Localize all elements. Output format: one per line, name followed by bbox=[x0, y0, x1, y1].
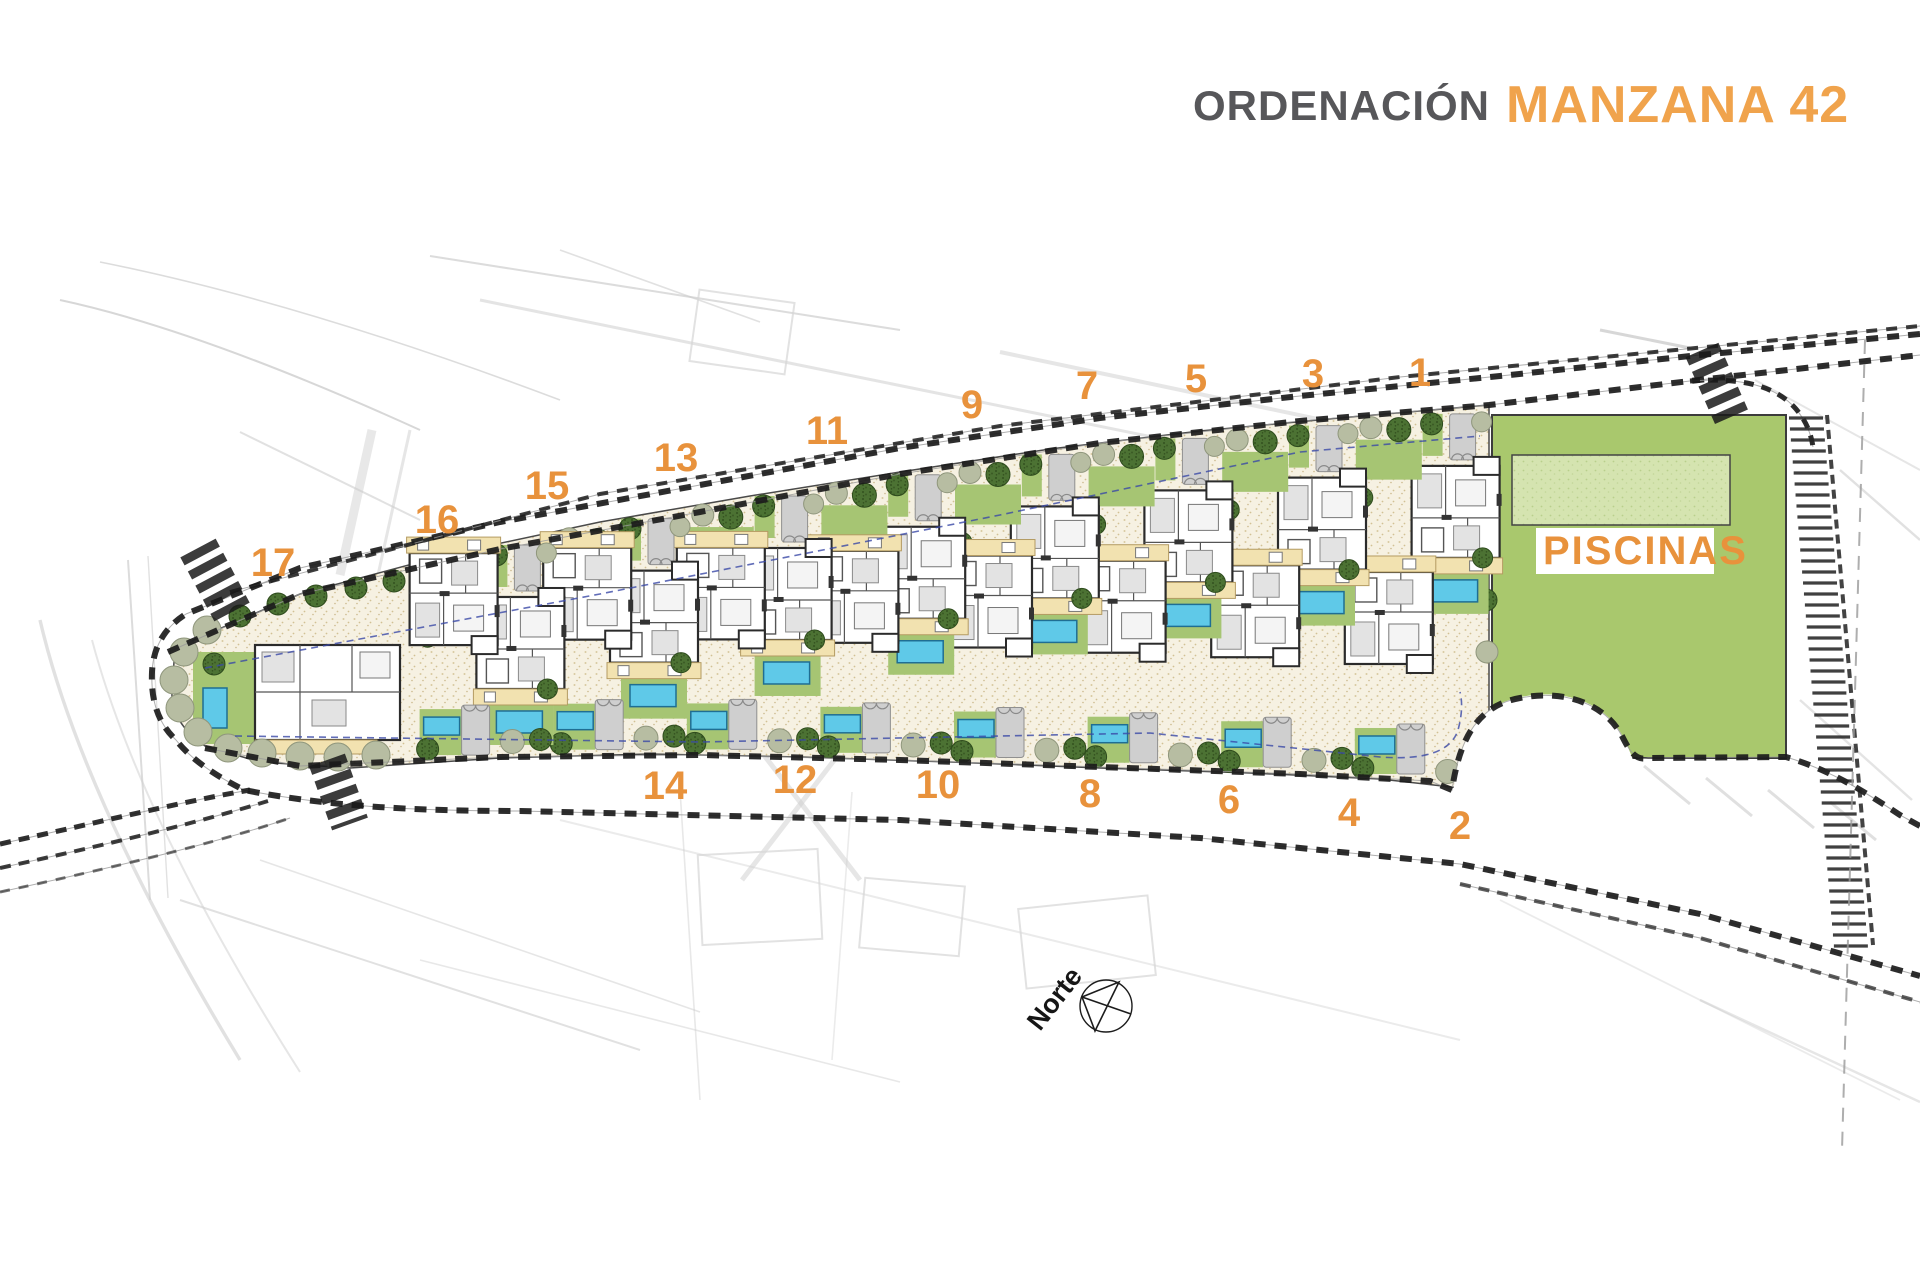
driveway bbox=[862, 703, 890, 753]
piscinas-label-group: PISCINAS bbox=[1536, 528, 1748, 574]
tree-icon bbox=[986, 463, 1010, 487]
pool bbox=[424, 717, 460, 735]
page-title: ORDENACIÓN MANZANA 42 bbox=[1193, 76, 1849, 134]
terrace-furniture bbox=[601, 535, 614, 545]
driveway bbox=[1130, 713, 1158, 763]
tree-icon bbox=[536, 543, 556, 563]
tree-icon bbox=[1338, 424, 1358, 444]
villa-door bbox=[1442, 515, 1452, 520]
villa-door bbox=[829, 576, 834, 588]
sketch-line bbox=[128, 560, 150, 900]
villa-room bbox=[988, 608, 1018, 634]
tree-icon bbox=[1153, 437, 1175, 459]
boundary-dashed bbox=[1842, 340, 1865, 1150]
pool bbox=[1432, 580, 1478, 602]
north-label: Norte bbox=[1021, 962, 1088, 1036]
villa-wing bbox=[1407, 655, 1433, 673]
pool bbox=[1031, 620, 1077, 642]
villa-room bbox=[1351, 622, 1375, 656]
pool bbox=[1164, 604, 1210, 626]
villa-room bbox=[719, 555, 745, 579]
villa-door bbox=[907, 576, 917, 581]
villa-wing bbox=[806, 539, 832, 557]
villa-door bbox=[1174, 539, 1184, 544]
plot-number: 9 bbox=[961, 383, 983, 427]
tree-icon bbox=[930, 732, 952, 754]
pool bbox=[824, 715, 860, 733]
tree-icon bbox=[500, 729, 524, 753]
villa-room bbox=[1322, 492, 1352, 518]
site-plan-page: 1357911131516171412108642 PISCINAS Norte… bbox=[0, 0, 1920, 1280]
villa-door bbox=[695, 599, 700, 611]
villa-door bbox=[1241, 603, 1251, 608]
villa-door bbox=[1041, 555, 1051, 560]
terrace-furniture bbox=[618, 666, 629, 676]
pool bbox=[691, 711, 727, 729]
villa-door bbox=[1163, 613, 1168, 625]
tree-icon bbox=[1035, 738, 1059, 762]
tree-icon bbox=[1071, 452, 1091, 472]
sketch-line bbox=[832, 792, 852, 1060]
sketch-line bbox=[680, 790, 700, 1100]
tree-icon bbox=[663, 725, 685, 747]
sketch-line bbox=[1700, 1000, 1920, 1102]
villa-door bbox=[1497, 494, 1502, 506]
villa-room bbox=[1320, 538, 1346, 562]
sketch-line bbox=[180, 900, 640, 1050]
road-texture bbox=[1830, 802, 1876, 840]
villa-room bbox=[721, 599, 751, 625]
villa-door bbox=[1296, 617, 1301, 629]
plot-number: 7 bbox=[1076, 364, 1098, 408]
villa-door bbox=[974, 594, 984, 599]
villa-door bbox=[561, 625, 566, 637]
tree-icon bbox=[1093, 443, 1115, 465]
plot-number: 5 bbox=[1185, 357, 1207, 401]
villa-wing bbox=[1474, 457, 1500, 475]
villa-door bbox=[1375, 610, 1385, 615]
tree-icon bbox=[1302, 748, 1326, 772]
plot-number: 16 bbox=[415, 498, 460, 542]
villa-room bbox=[1456, 480, 1486, 506]
plot-number: 12 bbox=[773, 758, 818, 802]
tree-icon bbox=[1473, 548, 1493, 568]
terrace-furniture bbox=[1136, 548, 1149, 558]
tree-icon bbox=[937, 473, 957, 493]
villa-room bbox=[1255, 617, 1285, 643]
villa-door bbox=[840, 589, 850, 594]
pool bbox=[1359, 736, 1395, 754]
tree-icon bbox=[203, 653, 225, 675]
villa-door bbox=[707, 585, 717, 590]
sketch-line bbox=[420, 960, 900, 1082]
tree-icon bbox=[797, 728, 819, 750]
tree-icon bbox=[1168, 743, 1192, 767]
plot-number: 4 bbox=[1338, 791, 1361, 835]
crosswalk bbox=[198, 548, 232, 612]
villa-room bbox=[553, 554, 575, 578]
tree-icon bbox=[684, 732, 706, 754]
villa-room bbox=[1454, 526, 1480, 550]
sketch-line bbox=[430, 256, 900, 330]
sketch-line bbox=[260, 860, 700, 1012]
piscinas-label: PISCINAS bbox=[1543, 529, 1748, 573]
terrace-furniture bbox=[1269, 552, 1282, 562]
villa-door bbox=[1108, 599, 1118, 604]
villa-door bbox=[495, 605, 500, 617]
title-ordenacion: ORDENACIÓN bbox=[1193, 81, 1490, 129]
plot-number: 10 bbox=[916, 763, 961, 807]
tree-icon bbox=[852, 483, 876, 507]
plot-number: 6 bbox=[1218, 778, 1240, 822]
villa-room bbox=[518, 657, 544, 681]
tree-icon bbox=[901, 733, 925, 757]
villa-room bbox=[1387, 580, 1413, 604]
tree-icon bbox=[1253, 430, 1277, 454]
tree-icon bbox=[1360, 417, 1382, 439]
villa-door bbox=[962, 555, 967, 567]
sketch-building bbox=[859, 878, 965, 956]
driveway bbox=[462, 705, 490, 755]
plot-number: 1 bbox=[1409, 351, 1431, 395]
terrace-furniture bbox=[484, 692, 495, 702]
villa-room bbox=[854, 603, 884, 629]
villa-door bbox=[1029, 608, 1034, 620]
sketch-line bbox=[1500, 900, 1900, 1100]
crosswalk bbox=[1702, 350, 1732, 418]
site-plan-drawing: 1357911131516171412108642 PISCINAS Norte… bbox=[0, 0, 1920, 1280]
tree-icon bbox=[634, 726, 658, 750]
plot-number: 8 bbox=[1079, 772, 1101, 816]
tree-icon bbox=[166, 694, 194, 722]
villa-room bbox=[1055, 520, 1085, 546]
sketch-building bbox=[1018, 895, 1156, 988]
villa-room bbox=[654, 585, 684, 611]
villa-door bbox=[440, 591, 450, 596]
villa-room bbox=[788, 562, 818, 588]
tree-icon bbox=[805, 630, 825, 650]
villa-door bbox=[1096, 534, 1101, 546]
villa-room bbox=[786, 608, 812, 632]
pool bbox=[557, 712, 593, 730]
villa-room bbox=[1422, 528, 1444, 552]
sketch-line bbox=[1840, 470, 1920, 540]
driveway bbox=[1397, 724, 1425, 774]
tree-icon bbox=[1120, 444, 1144, 468]
driveway bbox=[996, 708, 1024, 758]
villa-door bbox=[1430, 624, 1435, 636]
tree-icon bbox=[1064, 737, 1086, 759]
north-compass: Norte bbox=[1021, 962, 1132, 1036]
plot-number: 3 bbox=[1302, 352, 1324, 396]
pool bbox=[897, 641, 943, 663]
plot-number: 14 bbox=[643, 764, 688, 808]
villa-room bbox=[919, 587, 945, 611]
tree-icon bbox=[1197, 742, 1219, 764]
villa-room bbox=[486, 659, 508, 683]
pool bbox=[1092, 725, 1128, 743]
villa-wing bbox=[605, 631, 631, 649]
pool bbox=[630, 685, 676, 707]
tree-icon bbox=[1205, 572, 1225, 592]
villa-room bbox=[1389, 624, 1419, 650]
plot-number: 17 bbox=[251, 541, 296, 585]
tree-icon bbox=[804, 494, 824, 514]
sketch-line bbox=[1600, 330, 1690, 348]
stair-edge bbox=[1827, 415, 1873, 945]
villa-room bbox=[1186, 550, 1212, 574]
villa-footprint bbox=[255, 645, 400, 754]
villa-room bbox=[360, 652, 390, 678]
villa-room bbox=[652, 631, 678, 655]
road-texture bbox=[1644, 766, 1690, 804]
villa-wing bbox=[939, 518, 965, 536]
sketch-line bbox=[60, 300, 420, 430]
tree-icon bbox=[670, 517, 690, 537]
tree-icon bbox=[1072, 588, 1092, 608]
villa-wing bbox=[472, 636, 498, 654]
villa-wing bbox=[872, 634, 898, 652]
driveway bbox=[595, 700, 623, 750]
sketch-building bbox=[698, 849, 823, 945]
villa-wing bbox=[1073, 497, 1099, 515]
tree-icon bbox=[160, 666, 188, 694]
villa-room bbox=[312, 700, 346, 726]
villa-room bbox=[1122, 613, 1152, 639]
villa-room bbox=[587, 600, 617, 626]
villa-room bbox=[452, 561, 478, 585]
terrace-furniture bbox=[735, 534, 748, 544]
villa-wing bbox=[1340, 469, 1366, 487]
villa-room bbox=[852, 559, 878, 583]
tree-icon bbox=[214, 734, 242, 762]
tree-icon bbox=[938, 609, 958, 629]
driveway bbox=[1263, 717, 1291, 767]
villa-room bbox=[416, 603, 440, 637]
villa-room bbox=[585, 556, 611, 580]
pool bbox=[1298, 592, 1344, 614]
tree-icon bbox=[1226, 429, 1248, 451]
terrace-furniture bbox=[1403, 559, 1416, 569]
plot-number: 11 bbox=[806, 409, 848, 453]
pool bbox=[958, 720, 994, 738]
villa-door bbox=[1229, 518, 1234, 530]
villa-room bbox=[986, 564, 1012, 588]
tree-icon bbox=[1331, 747, 1353, 769]
tree-icon bbox=[184, 718, 212, 746]
plot-number: 2 bbox=[1449, 804, 1471, 848]
sketch-line bbox=[560, 250, 760, 322]
villa-door bbox=[1363, 506, 1368, 518]
compass-chord-icon bbox=[1082, 997, 1131, 1014]
title-manzana: MANZANA 42 bbox=[1506, 76, 1849, 134]
terrace-furniture bbox=[468, 540, 481, 550]
villa-door bbox=[573, 586, 583, 591]
terrace-furniture bbox=[685, 534, 696, 544]
villa-door bbox=[640, 620, 650, 625]
tree-icon bbox=[1387, 418, 1411, 442]
villa-room bbox=[921, 541, 951, 567]
terrace-furniture bbox=[1002, 543, 1015, 553]
villa-wing bbox=[1206, 481, 1232, 499]
villa-door bbox=[895, 603, 900, 615]
villa-room bbox=[1188, 504, 1218, 530]
villa-door bbox=[774, 597, 784, 602]
villa-wing bbox=[1273, 648, 1299, 666]
tree-icon bbox=[671, 653, 691, 673]
pool bbox=[764, 662, 810, 684]
villa-door bbox=[762, 599, 767, 611]
tree-icon bbox=[1476, 641, 1498, 663]
plot-number: 13 bbox=[654, 436, 699, 480]
piscinas-pool-deck bbox=[1512, 455, 1730, 525]
villa-wing bbox=[1140, 644, 1166, 662]
villa-wing bbox=[739, 630, 765, 648]
road-texture bbox=[1768, 790, 1814, 828]
villa-room bbox=[1053, 566, 1079, 590]
tree-icon bbox=[417, 738, 439, 760]
tree-icon bbox=[537, 679, 557, 699]
road-texture bbox=[1706, 778, 1752, 816]
tree-icon bbox=[1287, 425, 1309, 447]
villa-room bbox=[1253, 573, 1279, 597]
tree-icon bbox=[550, 733, 572, 755]
villa-door bbox=[1308, 527, 1318, 532]
tree-icon bbox=[1204, 436, 1224, 456]
villa-door bbox=[506, 646, 516, 651]
tree-icon bbox=[1339, 560, 1359, 580]
villa-room bbox=[1120, 569, 1146, 593]
tree-icon bbox=[1472, 412, 1492, 432]
plot-number: 15 bbox=[525, 464, 570, 508]
tree-icon bbox=[1421, 413, 1443, 435]
villa-door bbox=[628, 600, 633, 612]
villa-room bbox=[520, 611, 550, 637]
villa-wing bbox=[672, 562, 698, 580]
villa-wing bbox=[1006, 639, 1032, 657]
villa-footprint bbox=[407, 537, 501, 654]
